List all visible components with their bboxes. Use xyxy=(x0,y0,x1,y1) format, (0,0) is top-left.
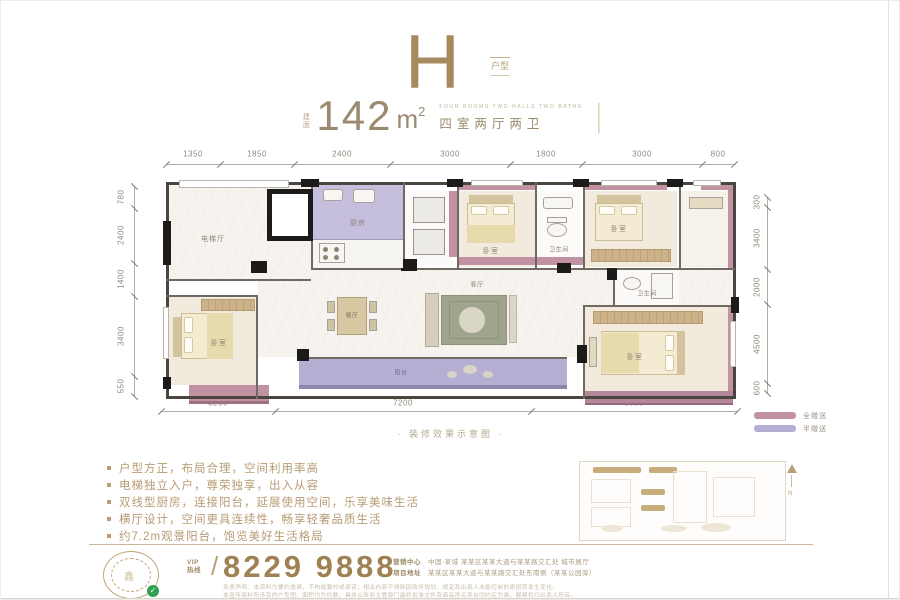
feature-item: 双线型厨房，连接阳台，延展使用空间，乐享美味生活 xyxy=(119,494,419,510)
hotline-label: 热线 xyxy=(187,567,201,575)
room-label-entry: 电梯厅 xyxy=(201,234,225,244)
hotline-prefix: VIP 热线 xyxy=(187,559,201,575)
hotline-phone-number: 8229 9888 xyxy=(223,551,397,582)
hotline-vip: VIP xyxy=(187,559,201,567)
room-label-bed1: 卧室 xyxy=(211,338,227,348)
room-label-bath2: 卫生间 xyxy=(637,289,657,298)
address-line-2: 项目地址 某某区某某大道与某某路交汇处东南侧（某某公园旁） xyxy=(393,567,596,577)
verified-check-icon: ✓ xyxy=(147,585,159,597)
feature-item: 横厅设计，空间更具连续性，畅享轻奢品质生活 xyxy=(119,511,382,527)
view-balcony xyxy=(299,359,567,387)
north-arrow-icon xyxy=(787,464,797,473)
feature-item: 约7.2m观景阳台，饱览美好生活格局 xyxy=(119,528,324,544)
feature-item: 户型方正，布局合理，空间利用率高 xyxy=(119,460,319,476)
page-edge-right xyxy=(888,1,889,600)
living-dining-floor xyxy=(258,270,583,357)
area-label: 建面 xyxy=(300,113,310,129)
plan-type-letter: H xyxy=(405,25,462,101)
room-label-bath1: 卫生间 xyxy=(549,245,569,254)
area-exponent: 2 xyxy=(418,104,425,119)
seal-character: 鑫 xyxy=(124,568,134,583)
room-label-balcony: 阳台 xyxy=(394,368,407,377)
plan-type-tag: 户型 xyxy=(490,57,510,76)
header-divider xyxy=(599,103,600,133)
area-row: 建面 142 m2 FOUR ROOMS TWO HALLS TWO BATHS… xyxy=(300,97,599,135)
elevator-shaft xyxy=(267,189,313,241)
room-label-master: 卧室 xyxy=(627,352,643,362)
legend-label-full: 全赠送 xyxy=(803,411,827,421)
legend-label-half: 半赠送 xyxy=(803,424,827,434)
subtitle-cn: 四室两厅两卫 xyxy=(439,113,582,132)
room-label-dining: 餐厅 xyxy=(345,311,358,320)
footer-divider xyxy=(89,544,813,545)
area-unit: m2 xyxy=(396,104,425,135)
subtitle-en: FOUR ROOMS TWO HALLS TWO BATHS xyxy=(439,104,582,110)
area-value: 142 xyxy=(316,97,392,135)
floorplan-flyer: H 户型 建面 142 m2 FOUR ROOMS TWO HALLS TWO … xyxy=(0,0,900,600)
hotline-slash: / xyxy=(211,553,218,579)
room-label-bed3: 卧室 xyxy=(611,224,627,234)
address-line-1: 营销中心 中国·某城 某某区某某大道与某某路交汇处 城市展厅 xyxy=(393,556,589,566)
plan-caption: · 装修效果示意图 · xyxy=(398,427,505,440)
room-label-living: 客厅 xyxy=(470,280,483,289)
feature-item: 电梯独立入户，尊荣独享，出入从容 xyxy=(119,477,319,493)
north-label: N xyxy=(788,491,792,497)
room-label-bed2: 卧室 xyxy=(483,246,499,256)
balcony-edge xyxy=(299,385,567,389)
room-label-kitchen: 厨房 xyxy=(350,218,366,228)
legend-swatch-half xyxy=(754,425,796,432)
legend-swatch-full xyxy=(754,412,796,419)
subtitle-block: FOUR ROOMS TWO HALLS TWO BATHS 四室两厅两卫 xyxy=(439,104,582,132)
